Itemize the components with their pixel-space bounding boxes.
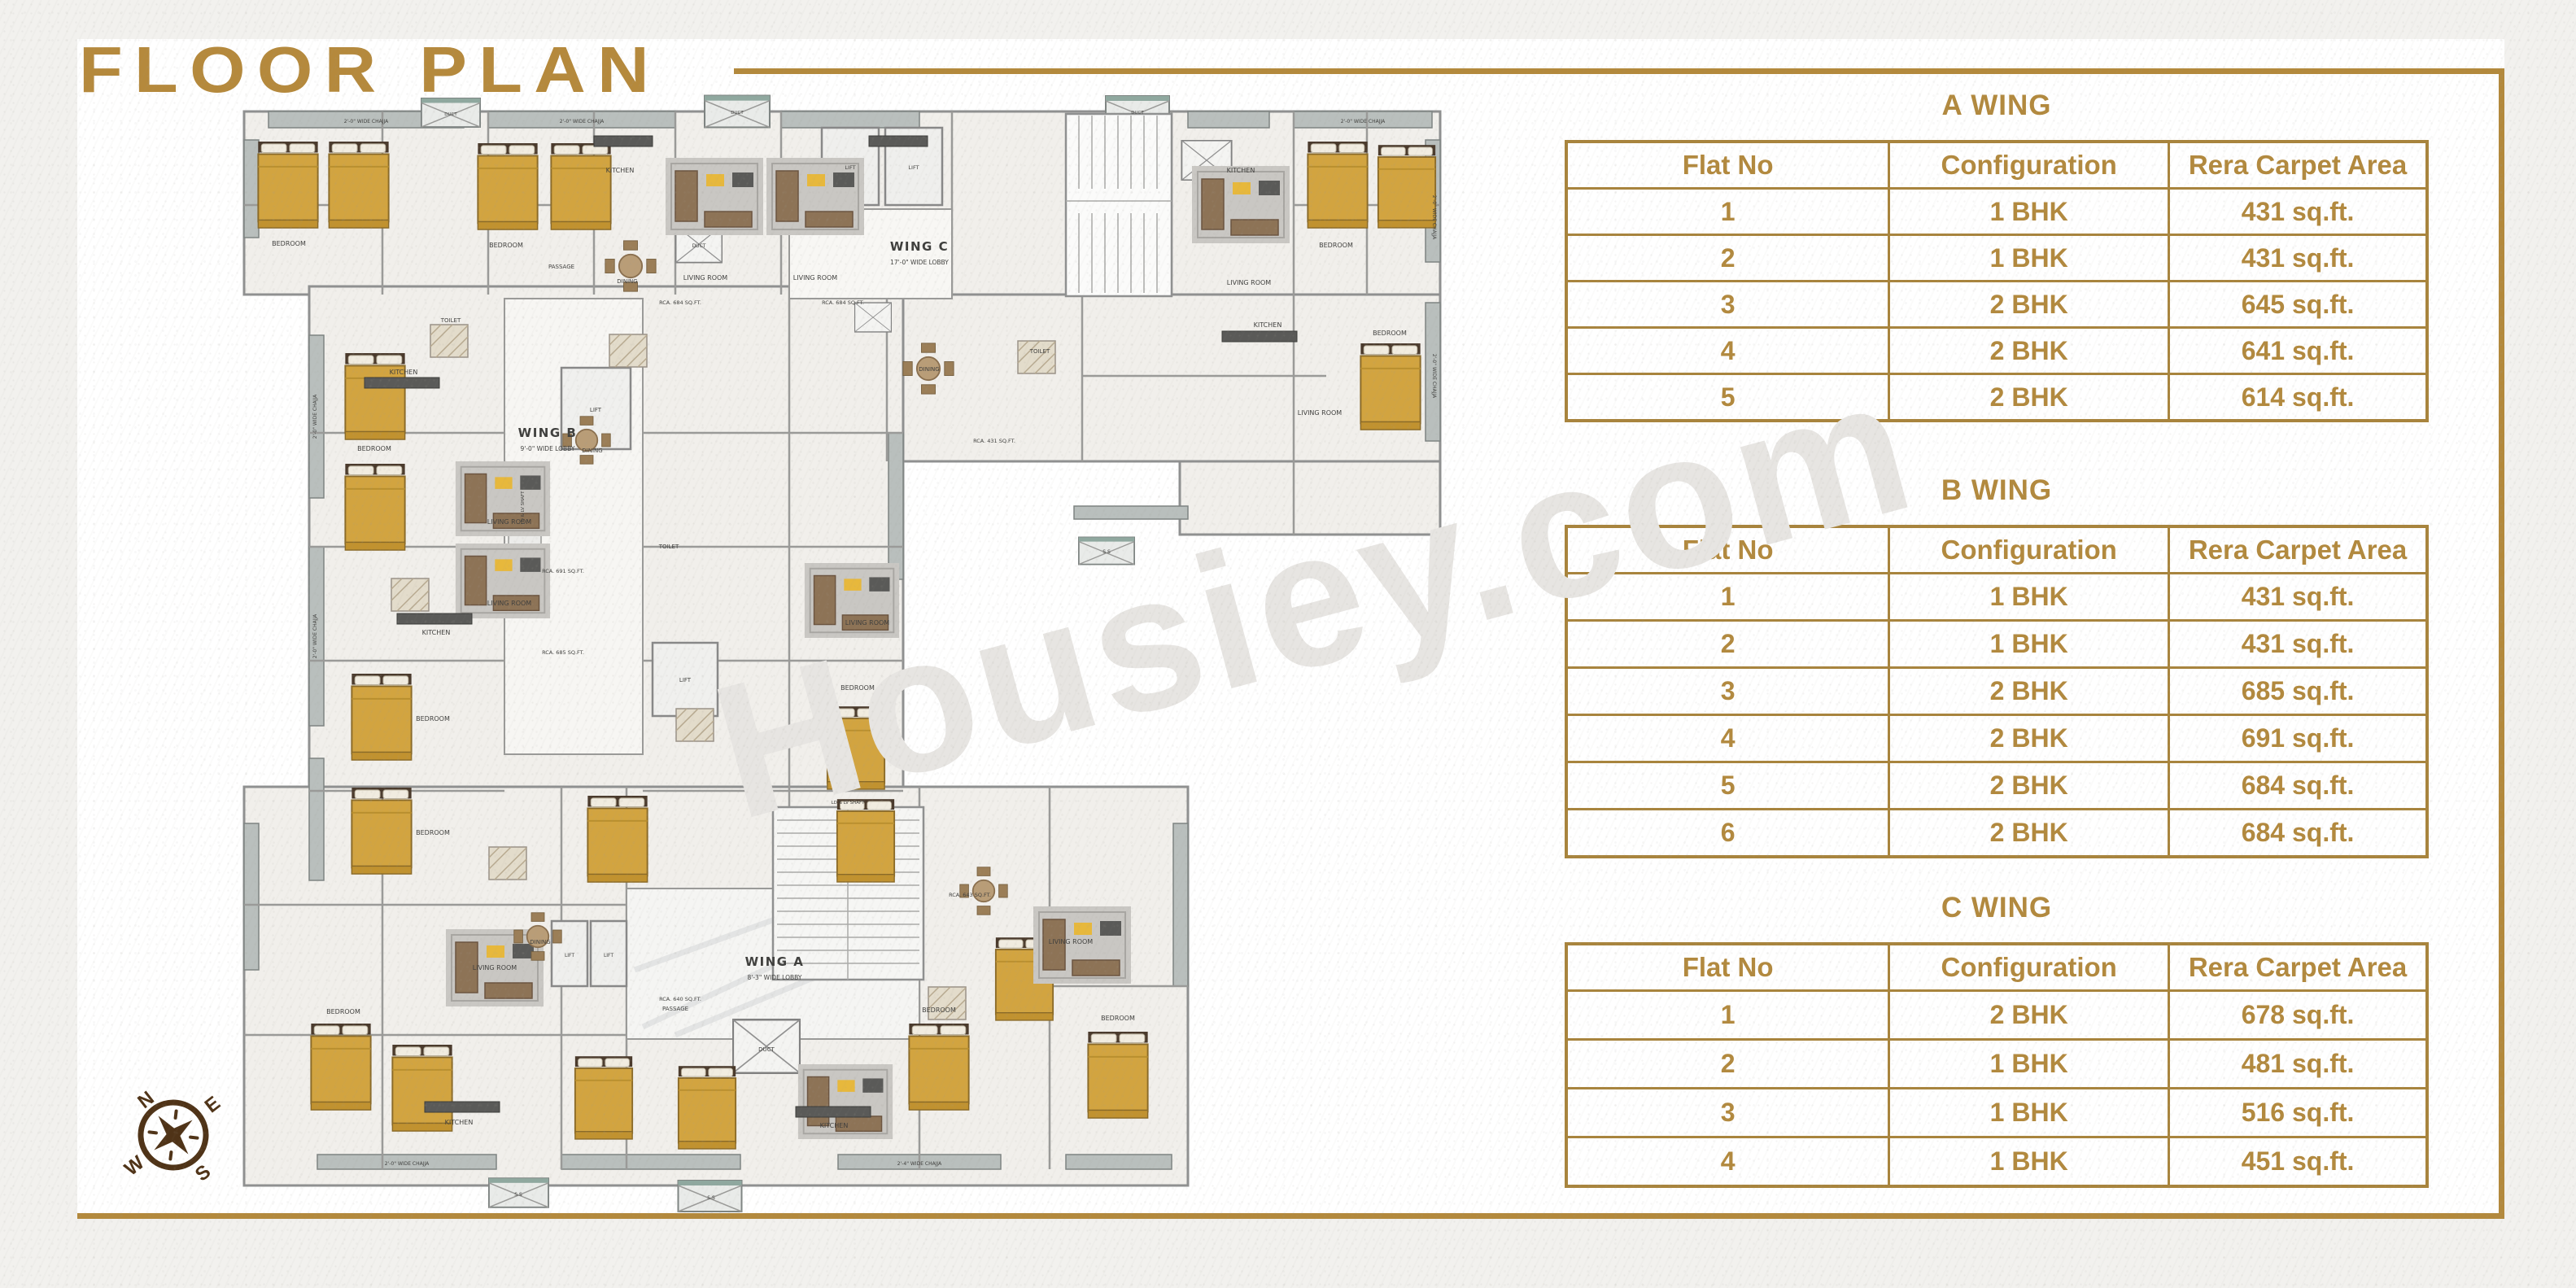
table-row: 32 BHK685 sq.ft. — [1566, 668, 2427, 715]
compass-e: E — [201, 1092, 225, 1117]
a-wing-title: A WING — [1565, 90, 2429, 122]
room-label: BEDROOM — [272, 240, 306, 247]
wing-sublabel: 17'-0" WIDE LOBBY — [890, 259, 949, 266]
table-row: 41 BHK451 sq.ft. — [1566, 1137, 2427, 1187]
table-cell: 678 sq.ft. — [2169, 991, 2427, 1040]
table-cell: 2 BHK — [1889, 810, 2169, 858]
table-cell: 451 sq.ft. — [2169, 1137, 2427, 1187]
table-cell: 685 sq.ft. — [2169, 668, 2427, 715]
room-label: LIFT — [565, 953, 574, 958]
table-cell: 1 BHK — [1889, 621, 2169, 668]
table-header-row: Flat NoConfigurationRera Carpet Area — [1566, 142, 2427, 189]
room-label: DUCT — [1131, 111, 1144, 116]
room-label: TOILET — [1029, 348, 1050, 355]
column-header: Flat No — [1566, 944, 1889, 991]
table-cell: 1 BHK — [1889, 235, 2169, 282]
room-label: KITCHEN — [390, 369, 418, 376]
table-cell: 431 sq.ft. — [2169, 574, 2427, 621]
room-label: RCA. 640 SQ.FT. — [659, 996, 701, 1002]
room-label: 2'-0" WIDE CHAJJA — [344, 119, 389, 124]
table-cell: 684 sq.ft. — [2169, 810, 2427, 858]
table-row: 62 BHK684 sq.ft. — [1566, 810, 2427, 858]
table-cell: 3 — [1566, 282, 1889, 328]
room-label: LIFT — [908, 164, 919, 171]
room-label: BEDROOM — [1101, 1015, 1135, 1022]
room-label: KITCHEN — [820, 1122, 849, 1129]
room-label: TOILET — [440, 317, 461, 324]
room-label: LIFT — [604, 953, 613, 958]
room-label: LIVING ROOM — [487, 600, 532, 607]
room-label: TOILET — [658, 544, 679, 550]
room-label: KITCHEN — [445, 1119, 474, 1126]
table-cell: 2 BHK — [1889, 668, 2169, 715]
room-label: DINING — [617, 278, 637, 285]
room-label: 2'-0" WIDE CHAJJA — [560, 119, 605, 124]
compass-icon: N E S W — [116, 1077, 231, 1193]
table-cell: 6 — [1566, 810, 1889, 858]
table-cell: 645 sq.ft. — [2169, 282, 2427, 328]
room-label: LIVING ROOM — [793, 274, 838, 282]
room-label: RCA. 684 SQ.FT. — [659, 299, 701, 306]
room-label: BEDROOM — [922, 1006, 956, 1014]
table-row: 42 BHK691 sq.ft. — [1566, 715, 2427, 762]
room-label: KITCHEN — [422, 629, 451, 636]
wing-sublabel: 8'-3" WIDE LOBBY — [748, 974, 802, 981]
table-cell: 2 — [1566, 235, 1889, 282]
table-header-row: Flat NoConfigurationRera Carpet Area — [1566, 944, 2427, 991]
wing-label: WING B — [518, 426, 578, 440]
room-label: 2'-0" WIDE CHAJJA — [385, 1161, 430, 1167]
room-label: PASSAGE — [548, 264, 574, 270]
table-cell: 3 — [1566, 668, 1889, 715]
room-label: 2'-0" WIDE CHAJJA — [312, 613, 318, 658]
room-label: DUCT — [758, 1046, 775, 1053]
room-label: KITCHEN — [1254, 321, 1282, 329]
wing-label: WING A — [745, 954, 805, 969]
table-cell: 431 sq.ft. — [2169, 235, 2427, 282]
room-label: 2'-0" WIDE CHAJJA — [1341, 119, 1386, 124]
room-label: DINING — [582, 448, 602, 454]
wing-label: WING C — [890, 239, 949, 254]
table-cell: 4 — [1566, 1137, 1889, 1187]
table-row: 21 BHK431 sq.ft. — [1566, 235, 2427, 282]
wing-sublabel: 9'-0" WIDE LOBBY — [521, 445, 575, 452]
room-label: BEDROOM — [326, 1008, 360, 1015]
room-label: LIFT — [845, 164, 855, 171]
table-row: 52 BHK684 sq.ft. — [1566, 762, 2427, 810]
table-cell: 5 — [1566, 762, 1889, 810]
room-label: RCA. 431 SQ.FT. — [973, 438, 1015, 444]
table-cell: 431 sq.ft. — [2169, 621, 2427, 668]
room-label: LIVING ROOM — [683, 274, 728, 282]
room-label: RCA. 685 SQ.FT. — [542, 649, 584, 656]
table-cell: 691 sq.ft. — [2169, 715, 2427, 762]
table-cell: 481 sq.ft. — [2169, 1040, 2427, 1089]
table-row: 11 BHK431 sq.ft. — [1566, 189, 2427, 235]
table-cell: 1 — [1566, 991, 1889, 1040]
table-row: 31 BHK516 sq.ft. — [1566, 1089, 2427, 1137]
table-cell: 1 — [1566, 189, 1889, 235]
room-label: 2'-4" WIDE CHAJJA — [897, 1161, 942, 1167]
table-cell: 1 BHK — [1889, 1137, 2169, 1187]
floor-plan-page: BEDROOMBEDROOMKITCHENPASSAGEDININGLIVING… — [0, 0, 2576, 1288]
table-cell: 516 sq.ft. — [2169, 1089, 2427, 1137]
c-wing-section: C WING Flat NoConfigurationRera Carpet A… — [1565, 892, 2429, 1188]
room-label: LIVING ROOM — [473, 964, 517, 971]
table-cell: 1 BHK — [1889, 1040, 2169, 1089]
room-label: DINING — [919, 366, 939, 373]
table-cell: 431 sq.ft. — [2169, 189, 2427, 235]
room-label: BEDROOM — [357, 445, 391, 452]
room-label: RCA. 643 SQ.FT. — [949, 892, 991, 898]
column-header: Rera Carpet Area — [2169, 944, 2427, 991]
room-label: LIVING ROOM — [1298, 409, 1343, 417]
table-cell: 3 — [1566, 1089, 1889, 1137]
table-cell: 1 BHK — [1889, 1089, 2169, 1137]
room-label: BEDROOM — [1319, 242, 1353, 249]
room-label: LD & LV SHAFT — [521, 491, 526, 525]
compass-w: W — [120, 1151, 149, 1180]
c-wing-title: C WING — [1565, 892, 2429, 924]
room-label: BEDROOM — [489, 242, 523, 249]
room-label: KITCHEN — [1227, 167, 1255, 174]
table-cell: 1 BHK — [1889, 574, 2169, 621]
room-label: 2'-0" WIDE CHAJJA — [312, 394, 318, 439]
table-cell: 641 sq.ft. — [2169, 328, 2427, 374]
column-header: Rera Carpet Area — [2169, 526, 2427, 574]
c-wing-table: Flat NoConfigurationRera Carpet Area 12 … — [1565, 942, 2429, 1188]
room-label: KITCHEN — [606, 167, 635, 174]
table-cell: 2 — [1566, 1040, 1889, 1089]
column-header: Configuration — [1889, 142, 2169, 189]
table-cell: 2 BHK — [1889, 715, 2169, 762]
table-cell: 614 sq.ft. — [2169, 374, 2427, 421]
table-cell: 2 BHK — [1889, 991, 2169, 1040]
table-cell: 684 sq.ft. — [2169, 762, 2427, 810]
frame-right-line — [2499, 68, 2504, 1219]
room-label: PASSAGE — [662, 1006, 688, 1012]
room-label: DINING — [530, 939, 550, 945]
room-label: 2'-0" WIDE CHAJJA — [1431, 195, 1437, 240]
room-label: LIVING ROOM — [1227, 279, 1272, 286]
column-header: Flat No — [1566, 142, 1889, 189]
room-label: DUCT — [444, 112, 457, 117]
frame-top-line — [734, 68, 2504, 74]
column-header: Rera Carpet Area — [2169, 142, 2427, 189]
table-cell: 4 — [1566, 715, 1889, 762]
column-header: Configuration — [1889, 944, 2169, 991]
table-row: 21 BHK481 sq.ft. — [1566, 1040, 2427, 1089]
compass-s: S — [191, 1160, 215, 1185]
room-label: 2'-0" WIDE CHAJJA — [1431, 354, 1437, 399]
room-label: BEDROOM — [416, 715, 450, 723]
table-cell: 2 BHK — [1889, 762, 2169, 810]
room-label: RCA. 691 SQ.FT. — [542, 568, 584, 574]
room-label: BEDROOM — [416, 829, 450, 836]
table-cell: 1 BHK — [1889, 189, 2169, 235]
room-label: S.S — [707, 1195, 715, 1201]
room-label: S.S — [514, 1192, 522, 1198]
room-label: DUCT — [731, 111, 744, 116]
room-label: DUCT — [692, 243, 706, 249]
room-label: LIFT — [590, 407, 602, 413]
table-row: 12 BHK678 sq.ft. — [1566, 991, 2427, 1040]
room-label: LIVING ROOM — [1049, 938, 1094, 945]
room-label: BEDROOM — [1373, 330, 1407, 337]
room-label: RCA. 684 SQ.FT. — [822, 299, 864, 306]
